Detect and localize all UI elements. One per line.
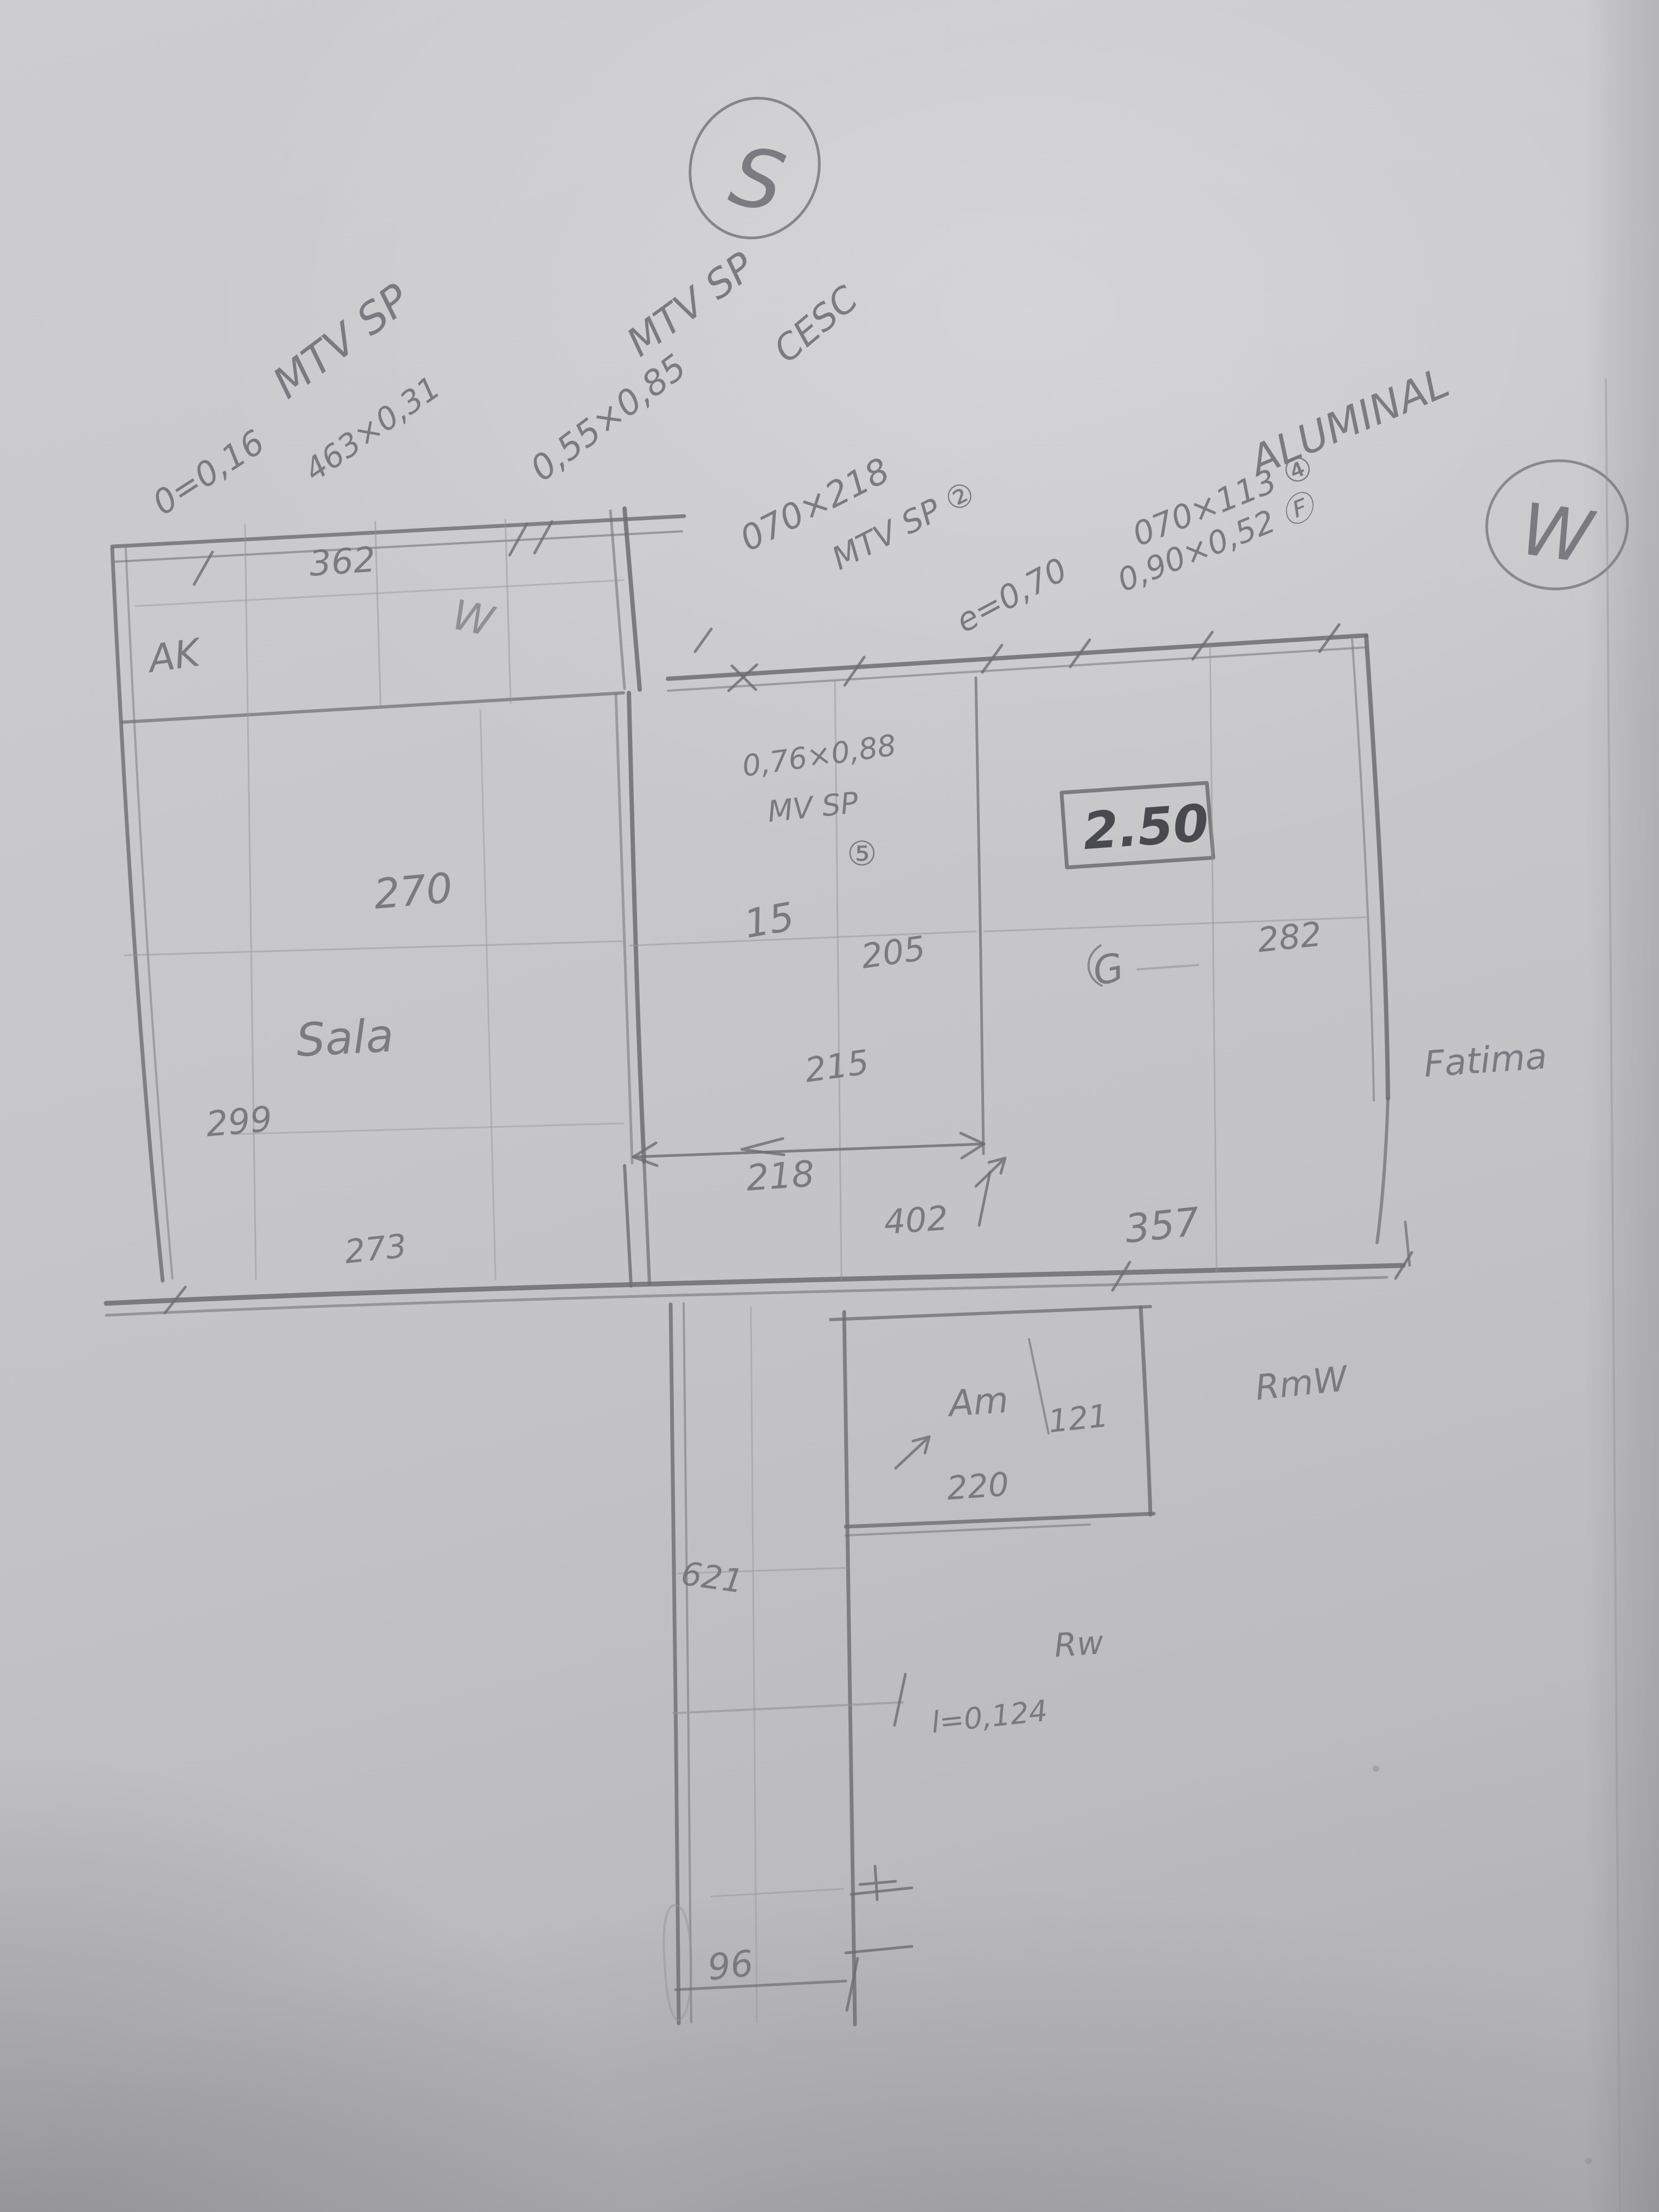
label-w-inner: W [448,590,499,646]
dim-299: 299 [204,1099,274,1145]
label-ak: AK [144,630,205,682]
dim-270: 270 [372,864,454,918]
dim-96: 96 [706,1943,756,1989]
walls-corridor [664,1303,855,2024]
note-mtv1-title: MTV SP [264,275,419,408]
note-mtv1-line1: 0=0,16 [145,422,271,523]
walls-right-room [1352,636,1388,1243]
dim-218: 218 [745,1153,816,1199]
dim-220: 220 [946,1465,1010,1508]
west-orientation-mark: W [1478,452,1636,598]
dim-402: 402 [883,1198,949,1242]
label-sala: Sala [295,1009,395,1067]
label-rmw: RmW [1253,1359,1351,1409]
dim-215: 215 [802,1042,871,1090]
note-mid-size: 0,76×0,88 [740,728,898,783]
walls-center [616,635,1366,1284]
west-letter: W [1516,487,1600,580]
south-orientation-mark: S [672,81,838,255]
photographed-paper-sketch: S W MTV SP 0=0,16 463×0,31 MTV SP CESC 0… [0,0,1659,2212]
label-fatima: Fatima [1423,1035,1548,1085]
dim-357: 357 [1123,1199,1202,1252]
label-rw: Rw [1053,1624,1105,1665]
dim-15: 15 [741,893,798,947]
note-mtv3-e: e=0,70 [950,551,1073,640]
dim-121: 121 [1046,1397,1110,1440]
label-am: Am [946,1379,1010,1425]
dim-621: 621 [679,1555,745,1601]
note-boxed-height: 2.50 [1081,794,1211,861]
note-mtv2-code: CESC [766,278,866,371]
floor-plan-drawing: S W MTV SP 0=0,16 463×0,31 MTV SP CESC 0… [0,0,1659,2212]
dim-282: 282 [1256,914,1323,960]
window-notes: MTV SP 0=0,16 463×0,31 MTV SP CESC 0,55×… [145,243,1456,1740]
note-alu-title: ALUMINAL [1240,358,1456,486]
note-mtv2-title: MTV SP [619,243,763,365]
south-letter: S [723,128,793,232]
note-l: l=0,124 [930,1694,1049,1740]
dim-362: 362 [308,540,377,584]
label-g: G [1089,944,1128,995]
dim-273: 273 [343,1227,408,1271]
paper-artifacts [1373,380,1620,2212]
note-mid-title: MV SP [766,786,860,829]
note-mtv2-size: 0,55×0,85 [523,347,694,490]
note-mid-mark: ⑤ [847,834,877,873]
wall-south-main [106,1265,1403,1315]
dim-205: 205 [859,928,928,976]
